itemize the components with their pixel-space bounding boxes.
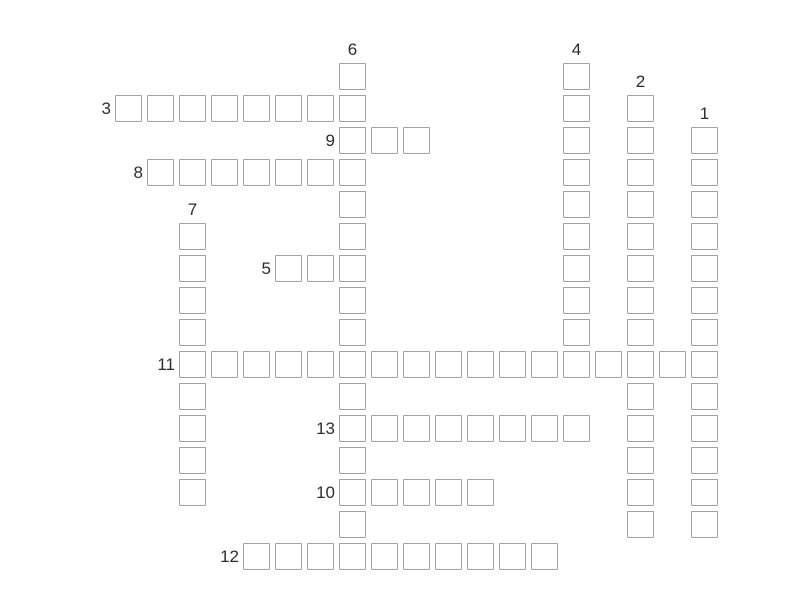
crossword-cell[interactable] [531,415,558,442]
crossword-cell[interactable] [339,543,366,570]
crossword-cell[interactable] [179,351,206,378]
crossword-cell[interactable] [627,383,654,410]
crossword-cell[interactable] [147,159,174,186]
crossword-cell[interactable] [435,543,462,570]
crossword-cell[interactable] [467,479,494,506]
crossword-cell[interactable] [563,223,590,250]
crossword-cell[interactable] [627,447,654,474]
crossword-cell[interactable] [691,255,718,282]
crossword-cell[interactable] [339,95,366,122]
crossword-cell[interactable] [339,255,366,282]
crossword-cell[interactable] [307,159,334,186]
crossword-cell[interactable] [275,543,302,570]
crossword-cell[interactable] [531,543,558,570]
crossword-cell[interactable] [627,255,654,282]
crossword-cell[interactable] [243,351,270,378]
crossword-cell[interactable] [339,223,366,250]
crossword-cell[interactable] [307,351,334,378]
crossword-cell[interactable] [211,351,238,378]
crossword-cell[interactable] [307,543,334,570]
clue-number-13-across: 13 [295,415,335,442]
crossword-cell[interactable] [339,383,366,410]
crossword-cell[interactable] [243,95,270,122]
crossword-cell[interactable] [179,415,206,442]
crossword-grid: 12345678910111213 [0,0,800,600]
crossword-cell[interactable] [531,351,558,378]
clue-number-8-across: 8 [103,159,143,186]
crossword-cell[interactable] [339,63,366,90]
crossword-cell[interactable] [275,159,302,186]
crossword-cell[interactable] [627,319,654,346]
clue-number-5-across: 5 [231,255,271,282]
crossword-cell[interactable] [211,159,238,186]
crossword-cell[interactable] [403,479,430,506]
crossword-cell[interactable] [691,287,718,314]
crossword-cell[interactable] [179,447,206,474]
crossword-cell[interactable] [563,127,590,154]
crossword-cell[interactable] [627,127,654,154]
crossword-cell[interactable] [563,255,590,282]
crossword-cell[interactable] [691,351,718,378]
crossword-cell[interactable] [339,191,366,218]
crossword-cell[interactable] [691,383,718,410]
crossword-cell[interactable] [179,383,206,410]
crossword-cell[interactable] [691,511,718,538]
crossword-cell[interactable] [307,255,334,282]
crossword-cell[interactable] [563,319,590,346]
crossword-cell[interactable] [627,159,654,186]
crossword-cell[interactable] [147,95,174,122]
crossword-cell[interactable] [691,191,718,218]
crossword-cell[interactable] [403,543,430,570]
clue-number-3-across: 3 [71,95,111,122]
clue-number-6-down: 6 [339,36,366,63]
crossword-cell[interactable] [627,191,654,218]
crossword-cell[interactable] [691,127,718,154]
crossword-cell[interactable] [403,127,430,154]
crossword-cell[interactable] [275,95,302,122]
clue-number-4-down: 4 [563,36,590,63]
crossword-cell[interactable] [691,447,718,474]
crossword-cell[interactable] [659,351,686,378]
crossword-cell[interactable] [627,479,654,506]
crossword-cell[interactable] [563,351,590,378]
crossword-cell[interactable] [339,511,366,538]
crossword-cell[interactable] [179,95,206,122]
crossword-cell[interactable] [595,351,622,378]
crossword-cell[interactable] [563,159,590,186]
clue-number-11-across: 11 [135,351,175,378]
crossword-cell[interactable] [339,447,366,474]
crossword-cell[interactable] [563,191,590,218]
clue-number-12-across: 12 [199,543,239,570]
crossword-cell[interactable] [467,351,494,378]
crossword-cell[interactable] [563,287,590,314]
crossword-cell[interactable] [627,95,654,122]
crossword-cell[interactable] [339,159,366,186]
clue-number-7-down: 7 [179,196,206,223]
crossword-cell[interactable] [179,319,206,346]
crossword-cell[interactable] [179,255,206,282]
crossword-cell[interactable] [179,223,206,250]
crossword-cell[interactable] [275,255,302,282]
crossword-cell[interactable] [627,511,654,538]
crossword-cell[interactable] [627,351,654,378]
crossword-cell[interactable] [563,95,590,122]
clue-number-10-across: 10 [295,479,335,506]
crossword-cell[interactable] [339,415,366,442]
crossword-cell[interactable] [467,543,494,570]
crossword-cell[interactable] [691,479,718,506]
crossword-cell[interactable] [371,543,398,570]
crossword-cell[interactable] [467,415,494,442]
crossword-cell[interactable] [691,223,718,250]
crossword-cell[interactable] [563,415,590,442]
crossword-cell[interactable] [627,415,654,442]
crossword-cell[interactable] [339,351,366,378]
crossword-cell[interactable] [307,95,334,122]
crossword-cell[interactable] [243,159,270,186]
crossword-cell[interactable] [211,95,238,122]
crossword-cell[interactable] [499,543,526,570]
crossword-cell[interactable] [627,287,654,314]
crossword-cell[interactable] [371,415,398,442]
crossword-cell[interactable] [435,415,462,442]
crossword-cell[interactable] [371,351,398,378]
crossword-cell[interactable] [371,127,398,154]
crossword-cell[interactable] [435,351,462,378]
clue-number-2-down: 2 [627,68,654,95]
crossword-cell[interactable] [691,415,718,442]
crossword-cell[interactable] [691,159,718,186]
crossword-cell[interactable] [243,543,270,570]
crossword-cell[interactable] [339,479,366,506]
crossword-cell[interactable] [275,351,302,378]
crossword-cell[interactable] [371,479,398,506]
crossword-cell[interactable] [179,287,206,314]
crossword-cell[interactable] [403,415,430,442]
crossword-cell[interactable] [339,287,366,314]
crossword-cell[interactable] [499,415,526,442]
crossword-cell[interactable] [339,319,366,346]
crossword-cell[interactable] [627,223,654,250]
crossword-cell[interactable] [179,479,206,506]
crossword-cell[interactable] [435,479,462,506]
clue-number-9-across: 9 [295,127,335,154]
crossword-cell[interactable] [691,319,718,346]
clue-number-1-down: 1 [691,100,718,127]
crossword-cell[interactable] [499,351,526,378]
crossword-cell[interactable] [563,63,590,90]
crossword-cell[interactable] [179,159,206,186]
crossword-cell[interactable] [339,127,366,154]
crossword-cell[interactable] [115,95,142,122]
crossword-cell[interactable] [403,351,430,378]
